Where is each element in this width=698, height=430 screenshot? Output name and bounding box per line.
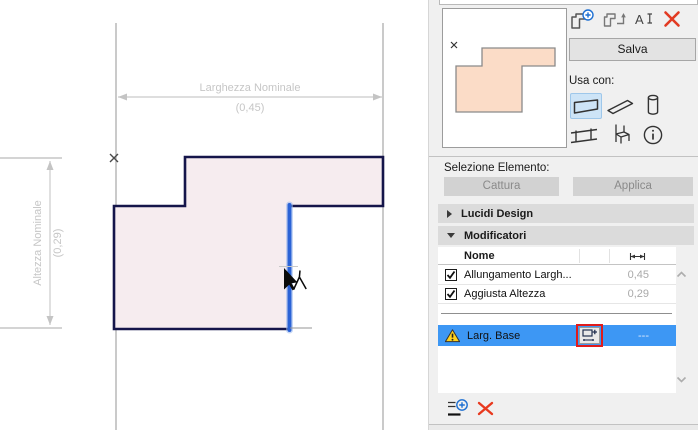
profile-shape[interactable] [114,157,383,329]
use-with-object-button[interactable] [604,121,636,147]
width-dim-label: Larghezza Nominale [200,82,301,94]
width-dim-value: (0,45) [236,102,265,114]
name-column-header: Nome [464,250,495,262]
save-button[interactable]: Salva [569,38,696,61]
modifier-value[interactable]: --- [638,330,649,342]
profile-preview-image [443,9,566,147]
table-row-selected[interactable]: Larg. Base --- [438,325,676,346]
clipped-control-above [439,0,698,5]
chair-icon [608,122,632,146]
checkbox-checked[interactable] [445,269,457,281]
drawing-canvas[interactable]: Larghezza Nominale (0,45) Altezza Nomina… [0,0,428,430]
table-row[interactable]: Allungamento Largh... 0,45 [438,266,676,285]
use-with-beam-button[interactable] [604,93,636,119]
canvas-drawing: Larghezza Nominale (0,45) Altezza Nomina… [0,0,428,430]
wall-icon [572,96,600,116]
add-modifier-button[interactable] [447,398,469,422]
checkmark-icon [446,270,456,280]
column-divider [579,249,580,263]
delete-red-x-icon [477,401,494,416]
height-dim-label: Altezza Nominale [32,200,44,286]
chevron-down-icon [676,376,687,383]
scroll-up-button[interactable] [676,269,687,281]
use-with-railing-button[interactable] [568,122,600,148]
use-with-label: Usa con: [569,75,614,87]
height-dim-value: (0,29) [52,229,64,258]
delete-profile-button[interactable] [663,10,681,31]
add-modifier-icon [447,398,469,419]
railing-icon [569,125,599,145]
use-with-wall-button[interactable] [570,93,602,119]
new-profile-icon [570,9,595,32]
chevron-down-icon [447,233,455,238]
dimension-arrows-icon [629,252,646,261]
scroll-down-button[interactable] [676,374,687,386]
rename-icon: A [635,11,654,28]
modifier-name: Aggiusta Altezza [464,288,545,300]
rename-profile-button[interactable]: A [635,11,654,31]
table-group-divider [441,313,672,314]
element-selection-label: Selezione Elemento: [444,162,549,174]
modifier-name: Allungamento Largh... [464,269,572,281]
pick-dimension-button[interactable] [579,327,600,344]
delete-modifier-button[interactable] [477,401,494,419]
svg-text:A: A [635,12,644,27]
column-icon [642,93,664,117]
modifier-value[interactable]: 0,45 [628,269,649,281]
section-modifiers[interactable]: Modificatori [438,226,694,245]
highlight-red-box [576,324,603,347]
use-with-column-button[interactable] [637,92,669,118]
capture-profile-button[interactable] [603,11,626,33]
table-row[interactable]: Aggiusta Altezza 0,29 [438,285,676,304]
chevron-up-icon [676,271,687,278]
beam-icon [606,95,634,117]
modifiers-table: Nome Allungamento Largh... 0,45 [438,247,676,393]
apply-button[interactable]: Applica [573,177,693,196]
profile-manager-panel: A Salva Usa con: [428,0,698,430]
table-header-row: Nome [438,247,676,265]
use-with-info-button[interactable] [637,122,669,148]
design-layers-label: Lucidi Design [461,208,533,220]
modifiers-label: Modificatori [464,230,526,242]
modifier-name: Larg. Base [467,330,520,342]
chevron-right-icon [447,210,452,218]
delete-red-x-icon [663,10,681,28]
info-icon [642,124,664,146]
new-profile-button[interactable] [570,9,595,35]
assign-dimension-icon [581,328,598,343]
profile-editor-window: Larghezza Nominale (0,45) Altezza Nomina… [0,0,698,430]
checkmark-icon [446,289,456,299]
height-dimension: Altezza Nominale (0,29) [32,161,64,325]
warning-icon [445,329,460,343]
profile-preview [442,8,567,148]
panel-divider [429,156,698,157]
capture-profile-icon [603,11,626,30]
width-dimension: Larghezza Nominale (0,45) [118,82,382,114]
column-divider [609,249,610,263]
preview-origin-marker-icon [451,42,457,48]
capture-button[interactable]: Cattura [444,177,559,196]
origin-marker-icon [110,154,118,162]
panel-bottom-edge [429,425,698,430]
modifier-value[interactable]: 0,29 [628,288,649,300]
section-design-layers[interactable]: Lucidi Design [438,204,694,223]
checkbox-checked[interactable] [445,288,457,300]
